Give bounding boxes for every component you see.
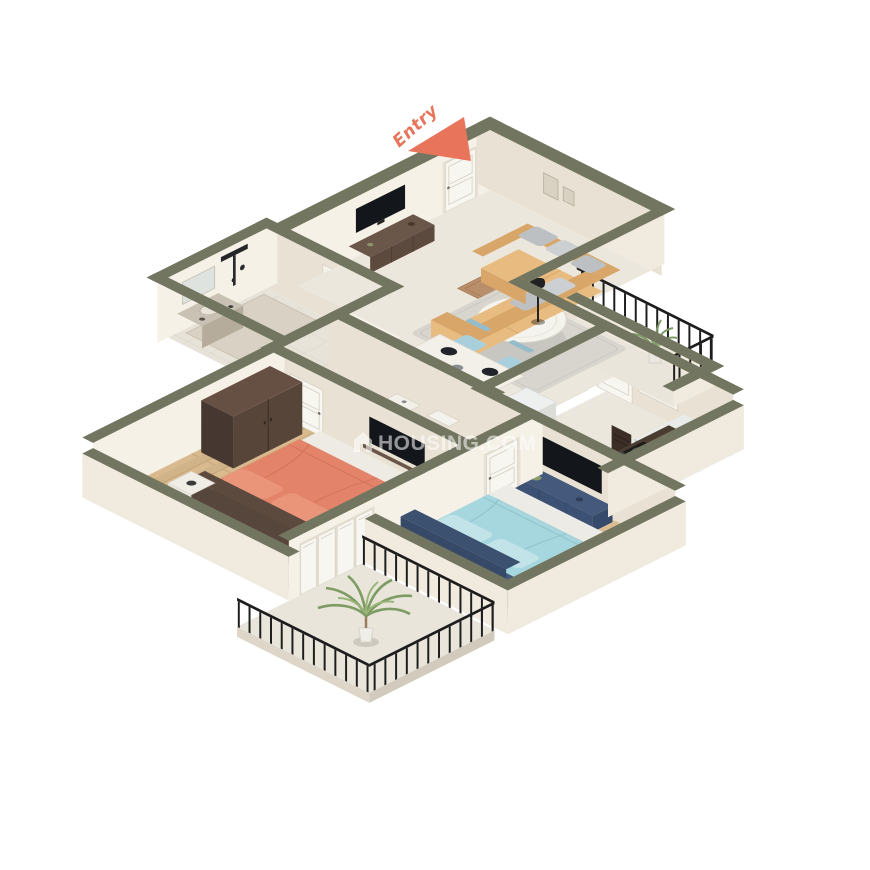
isometric-floorplan-render: Entry HOUSING.COM — [0, 0, 870, 870]
floorplan-page: Entry HOUSING.COM — [0, 0, 870, 870]
entry-annotation: Entry — [389, 101, 471, 161]
watermark: HOUSING.COM — [354, 432, 536, 455]
watermark-text: HOUSING.COM — [378, 432, 536, 455]
